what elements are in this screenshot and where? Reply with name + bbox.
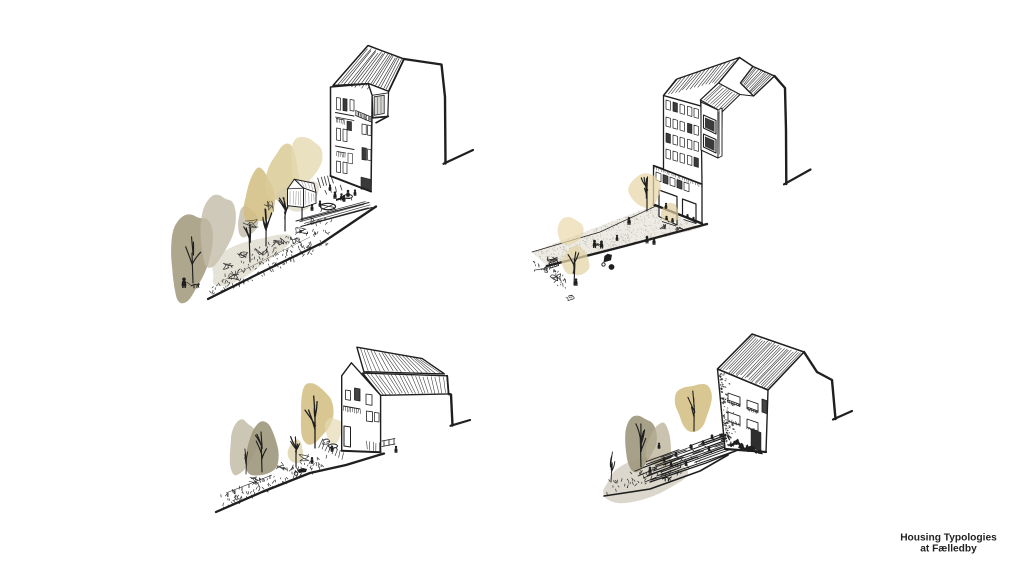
svg-text:at Fælledby: at Fælledby	[920, 543, 977, 554]
svg-text:Housing Typologies: Housing Typologies	[900, 533, 997, 544]
